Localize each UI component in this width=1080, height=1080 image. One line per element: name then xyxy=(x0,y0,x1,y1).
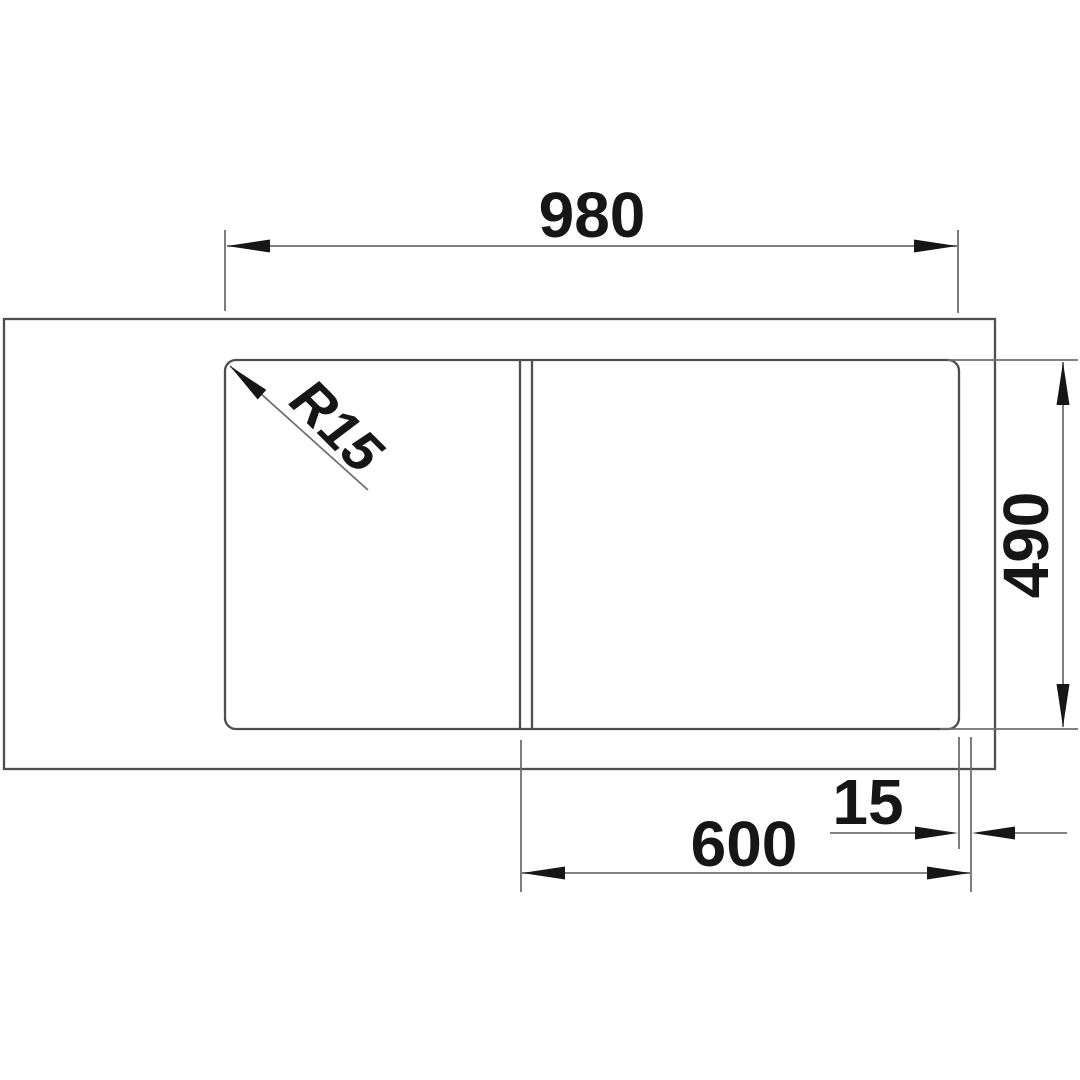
sink-dimension-drawing: 980 490 15 600 xyxy=(0,0,1080,1080)
dimension-label-edge-offset: 15 xyxy=(832,766,903,838)
dimension-corner-radius: R15 xyxy=(230,366,399,490)
arrowhead-down xyxy=(1057,684,1070,727)
technical-drawing-canvas: 980 490 15 600 xyxy=(0,0,1080,1080)
arrowhead-pointing-left xyxy=(972,827,1015,840)
dimension-label-depth: 490 xyxy=(990,492,1062,599)
arrowhead-pointing-right xyxy=(915,827,958,840)
arrowhead-corner xyxy=(230,366,266,400)
dimension-edge-offset: 15 xyxy=(830,737,1067,892)
sink-outline xyxy=(4,319,995,769)
outer-rim-rectangle xyxy=(4,319,995,769)
arrowhead-left xyxy=(522,867,565,880)
dimension-label-overall-width: 980 xyxy=(539,179,646,251)
arrowhead-right xyxy=(914,240,957,253)
arrowhead-left xyxy=(227,240,270,253)
dimension-label-bowl-width: 600 xyxy=(691,808,798,880)
dimension-depth: 490 xyxy=(940,360,1078,729)
dimension-overall-width: 980 xyxy=(225,179,958,313)
arrowhead-up xyxy=(1057,362,1070,405)
arrowhead-right xyxy=(927,867,970,880)
dimension-label-corner-radius: R15 xyxy=(276,371,399,482)
